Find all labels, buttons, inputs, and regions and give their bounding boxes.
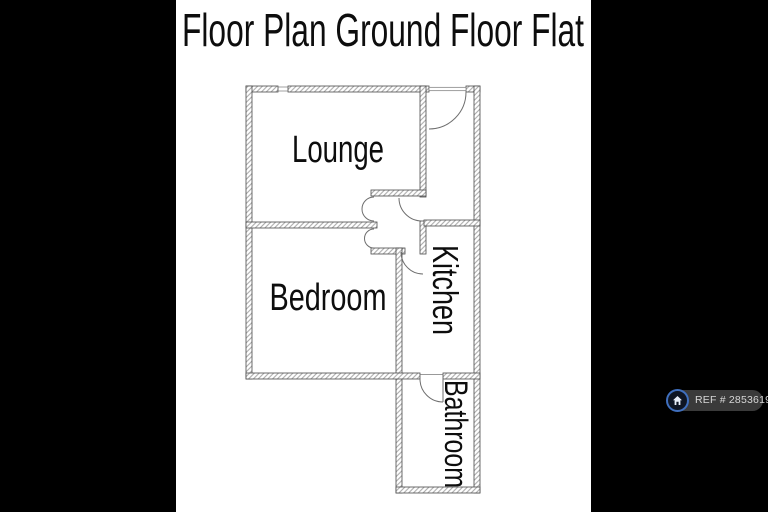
wall-lounge-hall-divider (420, 86, 426, 197)
wall-left-exterior (246, 86, 252, 379)
wall-vestibule-top (371, 190, 426, 196)
reference-watermark: REF # 2853619 (666, 389, 766, 412)
room-label-bedroom: Bedroom (270, 277, 387, 319)
page-title: Floor Plan Ground Floor Flat (182, 4, 584, 56)
watermark-ref-number: REF # 2853619 (695, 389, 768, 412)
wall-bottom-bedroom (246, 373, 420, 379)
wall-bedroom-kitchen-divider (396, 248, 402, 493)
room-label-kitchen: Kitchen (425, 245, 466, 335)
wall-bottom-kitchen-right (443, 373, 480, 379)
room-label-bathroom: Bathroom (438, 380, 474, 488)
entrance-door-leaf (429, 87, 466, 90)
estate-agent-logo-icon (666, 389, 689, 412)
house-icon (672, 395, 683, 406)
paper-background (176, 0, 591, 512)
room-label-lounge: Lounge (292, 129, 384, 171)
wall-top-segment-b (288, 86, 429, 92)
floor-plan-svg: Floor Plan Ground Floor Flat (0, 0, 768, 512)
wall-lounge-bedroom-divider (246, 222, 377, 228)
letterbox-background: Floor Plan Ground Floor Flat (0, 0, 768, 512)
wall-hall-kitchen-divider (424, 220, 480, 226)
